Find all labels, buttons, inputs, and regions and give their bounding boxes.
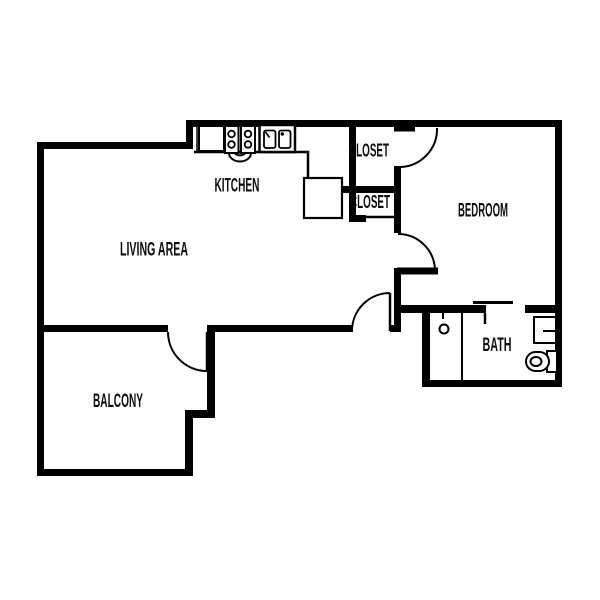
kitchen-peninsula xyxy=(304,178,342,218)
toilet-bowl xyxy=(526,352,549,371)
room-label-bedroom: BEDROOM xyxy=(458,201,508,222)
closet-door-leaf xyxy=(394,126,415,132)
wall-segment xyxy=(37,142,193,149)
drain-dot xyxy=(281,132,284,135)
door-arc xyxy=(398,234,435,271)
wall-segment xyxy=(185,410,193,476)
door-arc xyxy=(401,128,437,167)
wall-segment xyxy=(37,142,44,476)
walls xyxy=(37,120,562,476)
room-labels: KITCHEN CLOSET CLOSET BEDROOM LIVING ARE… xyxy=(93,141,512,413)
floor-plan-page: KITCHEN CLOSET CLOSET BEDROOM LIVING ARE… xyxy=(0,0,600,600)
vanity-icon xyxy=(534,317,556,343)
room-label-living-area: LIVING AREA xyxy=(120,240,188,261)
wall-segment xyxy=(394,166,401,233)
wall-segment xyxy=(394,268,401,331)
stove-icon xyxy=(225,126,255,162)
door-arc xyxy=(168,332,207,371)
wall-segment xyxy=(186,120,193,149)
oven-door-icon xyxy=(229,153,251,162)
wall-segment xyxy=(525,305,562,313)
shower-drain-icon xyxy=(440,325,449,334)
wall-segment xyxy=(555,120,562,387)
wall-segment xyxy=(37,325,168,332)
wall-segment xyxy=(349,215,366,222)
refrigerator-icon xyxy=(199,126,224,151)
bedroom-door-leaf xyxy=(397,268,438,275)
sink-icon xyxy=(260,125,296,152)
wall-segment xyxy=(37,469,193,476)
wall-segment xyxy=(394,305,486,313)
wall-segment xyxy=(422,380,562,387)
room-label-closet-upper: CLOSET xyxy=(349,141,389,161)
wall-segment xyxy=(207,325,353,332)
toilet-icon xyxy=(526,351,557,372)
wall-segment xyxy=(390,325,401,332)
room-label-kitchen: KITCHEN xyxy=(215,176,260,197)
room-label-balcony: BALCONY xyxy=(93,391,143,412)
room-label-bath: BATH xyxy=(483,335,512,356)
floor-plan: KITCHEN CLOSET CLOSET BEDROOM LIVING ARE… xyxy=(0,0,600,600)
kitchen-fixtures xyxy=(194,125,342,218)
door-arc xyxy=(352,293,390,331)
room-label-closet-lower: CLOSET xyxy=(350,192,390,212)
wall-segment xyxy=(422,305,430,387)
